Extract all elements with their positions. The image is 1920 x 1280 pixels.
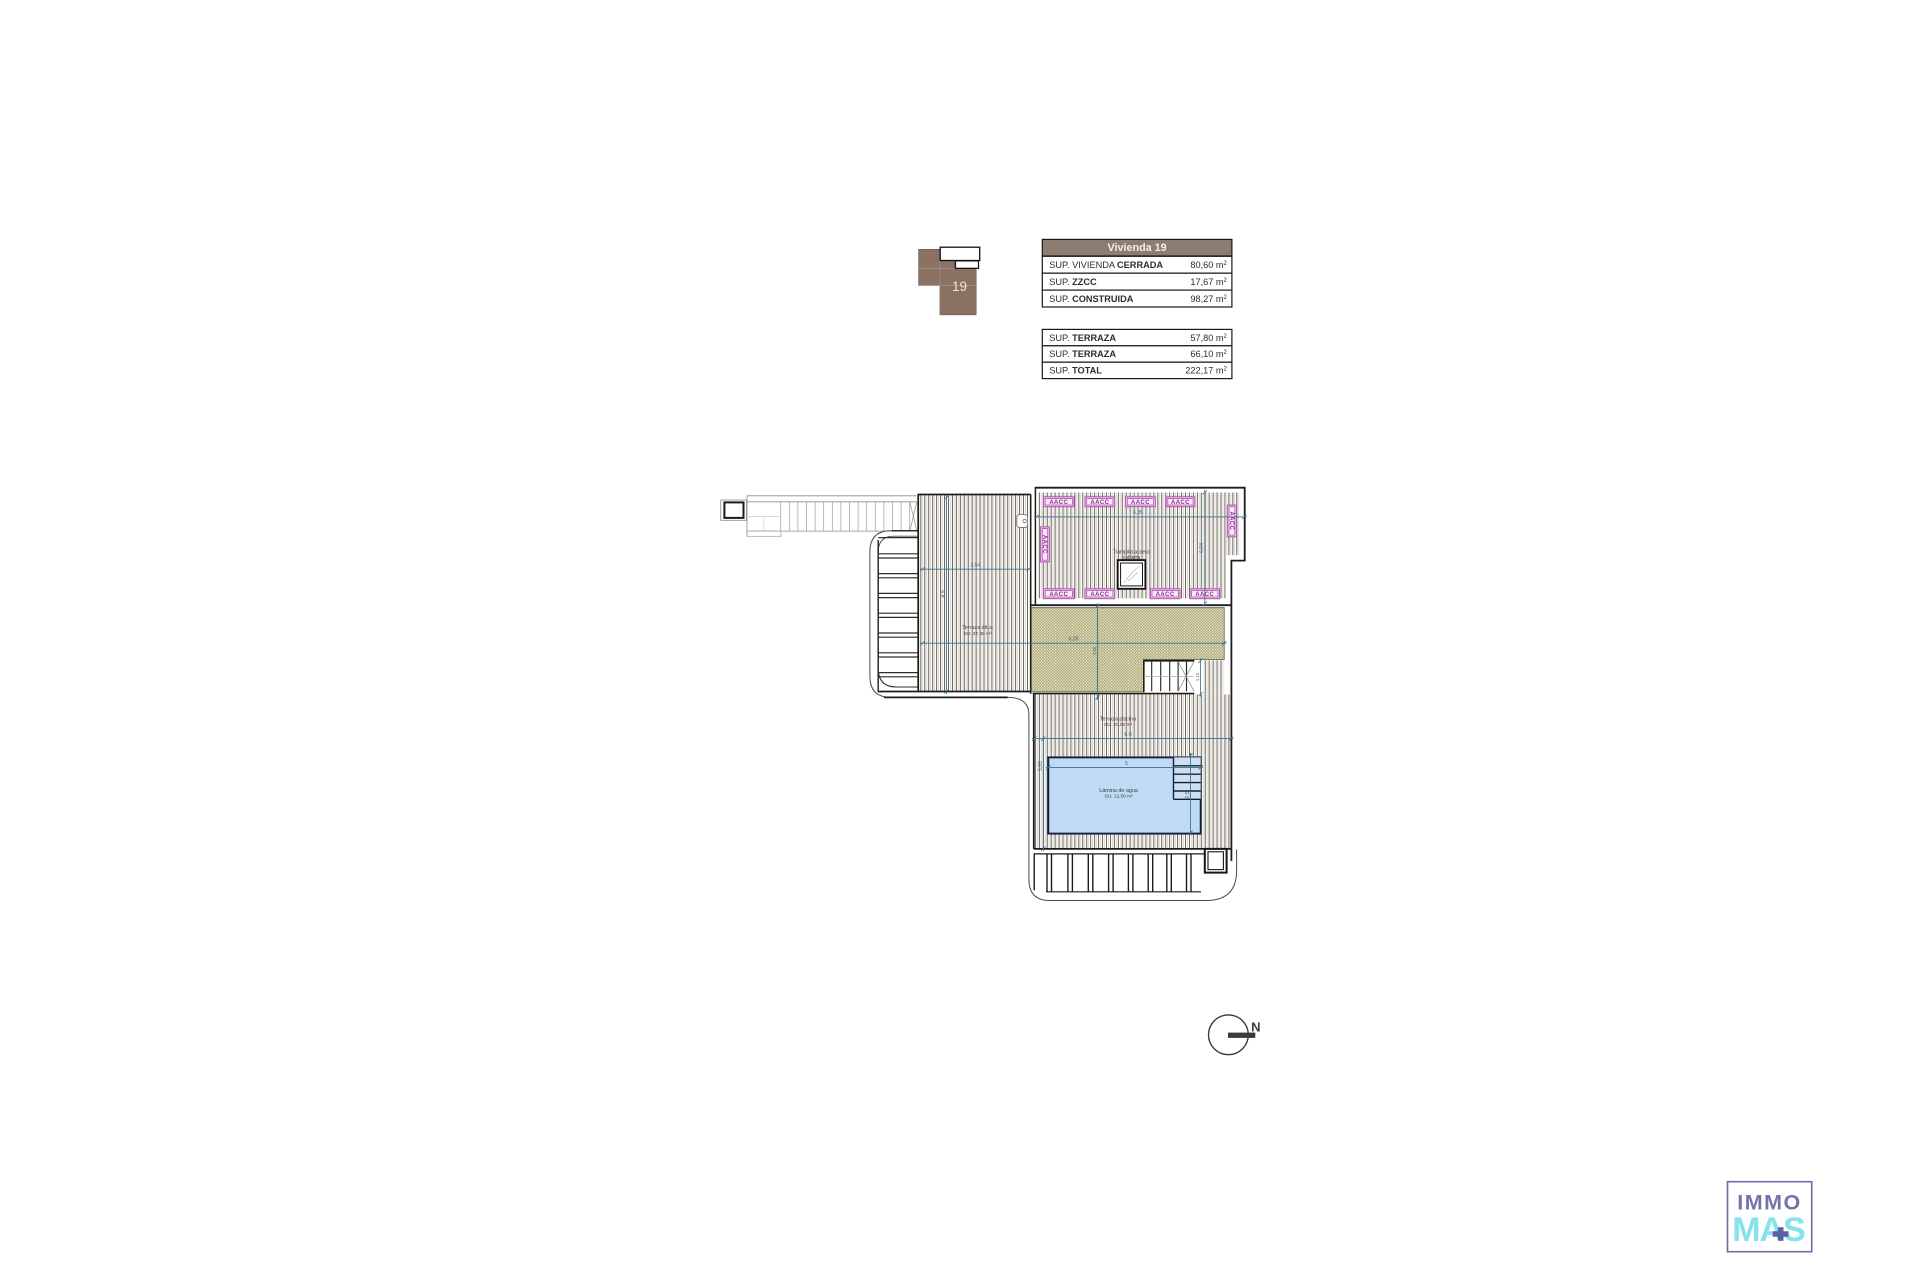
svg-text:SUP. TERRAZA: SUP. TERRAZA (1049, 333, 1116, 343)
svg-text:80,60 m2: 80,60 m2 (1190, 260, 1227, 270)
svg-text:SUP. VIVIENDA CERRADA: SUP. VIVIENDA CERRADA (1049, 260, 1163, 270)
svg-text:Vivienda 19: Vivienda 19 (1107, 242, 1166, 254)
svg-text:SUP. CONSTRUIDA: SUP. CONSTRUIDA (1049, 294, 1133, 304)
svg-text:3,05: 3,05 (1092, 646, 1097, 655)
svg-text:2,5: 2,5 (1185, 791, 1191, 798)
svg-text:MAS: MAS (1732, 1211, 1805, 1249)
svg-text:AACC: AACC (1228, 511, 1234, 530)
svg-text:98,27 m2: 98,27 m2 (1190, 294, 1227, 304)
svg-text:17,67 m2: 17,67 m2 (1190, 277, 1227, 287)
svg-text:SUP. TERRAZA: SUP. TERRAZA (1049, 349, 1116, 359)
svg-text:AACC: AACC (1171, 500, 1190, 506)
svg-text:N: N (1251, 1019, 1260, 1034)
svg-text:6,0: 6,0 (1124, 732, 1131, 738)
svg-text:AACC: AACC (1049, 500, 1068, 506)
svg-text:3,54: 3,54 (970, 563, 980, 569)
svg-text:AACC: AACC (1049, 592, 1068, 598)
svg-text:4,9: 4,9 (941, 590, 947, 597)
svg-text:Terraza piscina: Terraza piscina (1100, 717, 1136, 723)
svg-text:1,10: 1,10 (1195, 672, 1200, 681)
svg-text:Terraza ática: Terraza ática (962, 625, 993, 631)
svg-text:5: 5 (1125, 761, 1128, 767)
svg-text:Lámina de agua: Lámina de agua (1099, 788, 1138, 794)
svg-text:SU: 12,50 m²: SU: 12,50 m² (1104, 794, 1133, 800)
svg-text:19: 19 (952, 279, 967, 294)
svg-text:AACC: AACC (1131, 500, 1150, 506)
svg-text:AACC: AACC (1041, 535, 1047, 554)
svg-text:222,17 m2: 222,17 m2 (1185, 366, 1227, 376)
svg-text:6,05: 6,05 (1068, 636, 1078, 642)
svg-text:57,80 m2: 57,80 m2 (1190, 333, 1227, 343)
svg-text:6,04: 6,04 (1199, 543, 1205, 553)
svg-text:SU: 20,00 m²: SU: 20,00 m² (1104, 722, 1133, 728)
svg-text:cubierta: cubierta (1123, 555, 1141, 561)
svg-text:AACC: AACC (1090, 500, 1109, 506)
svg-text:AACC: AACC (1156, 592, 1175, 598)
svg-text:3,05: 3,05 (1038, 761, 1044, 771)
svg-text:66,10 m2: 66,10 m2 (1190, 349, 1227, 359)
svg-text:SUP. ZZCC: SUP. ZZCC (1049, 277, 1097, 287)
svg-text:SUP. TOTAL: SUP. TOTAL (1049, 366, 1102, 376)
svg-text:AACC: AACC (1090, 592, 1109, 598)
svg-text:SU: 37,40 m²: SU: 37,40 m² (963, 631, 992, 637)
svg-text:6,85: 6,85 (1133, 510, 1143, 516)
